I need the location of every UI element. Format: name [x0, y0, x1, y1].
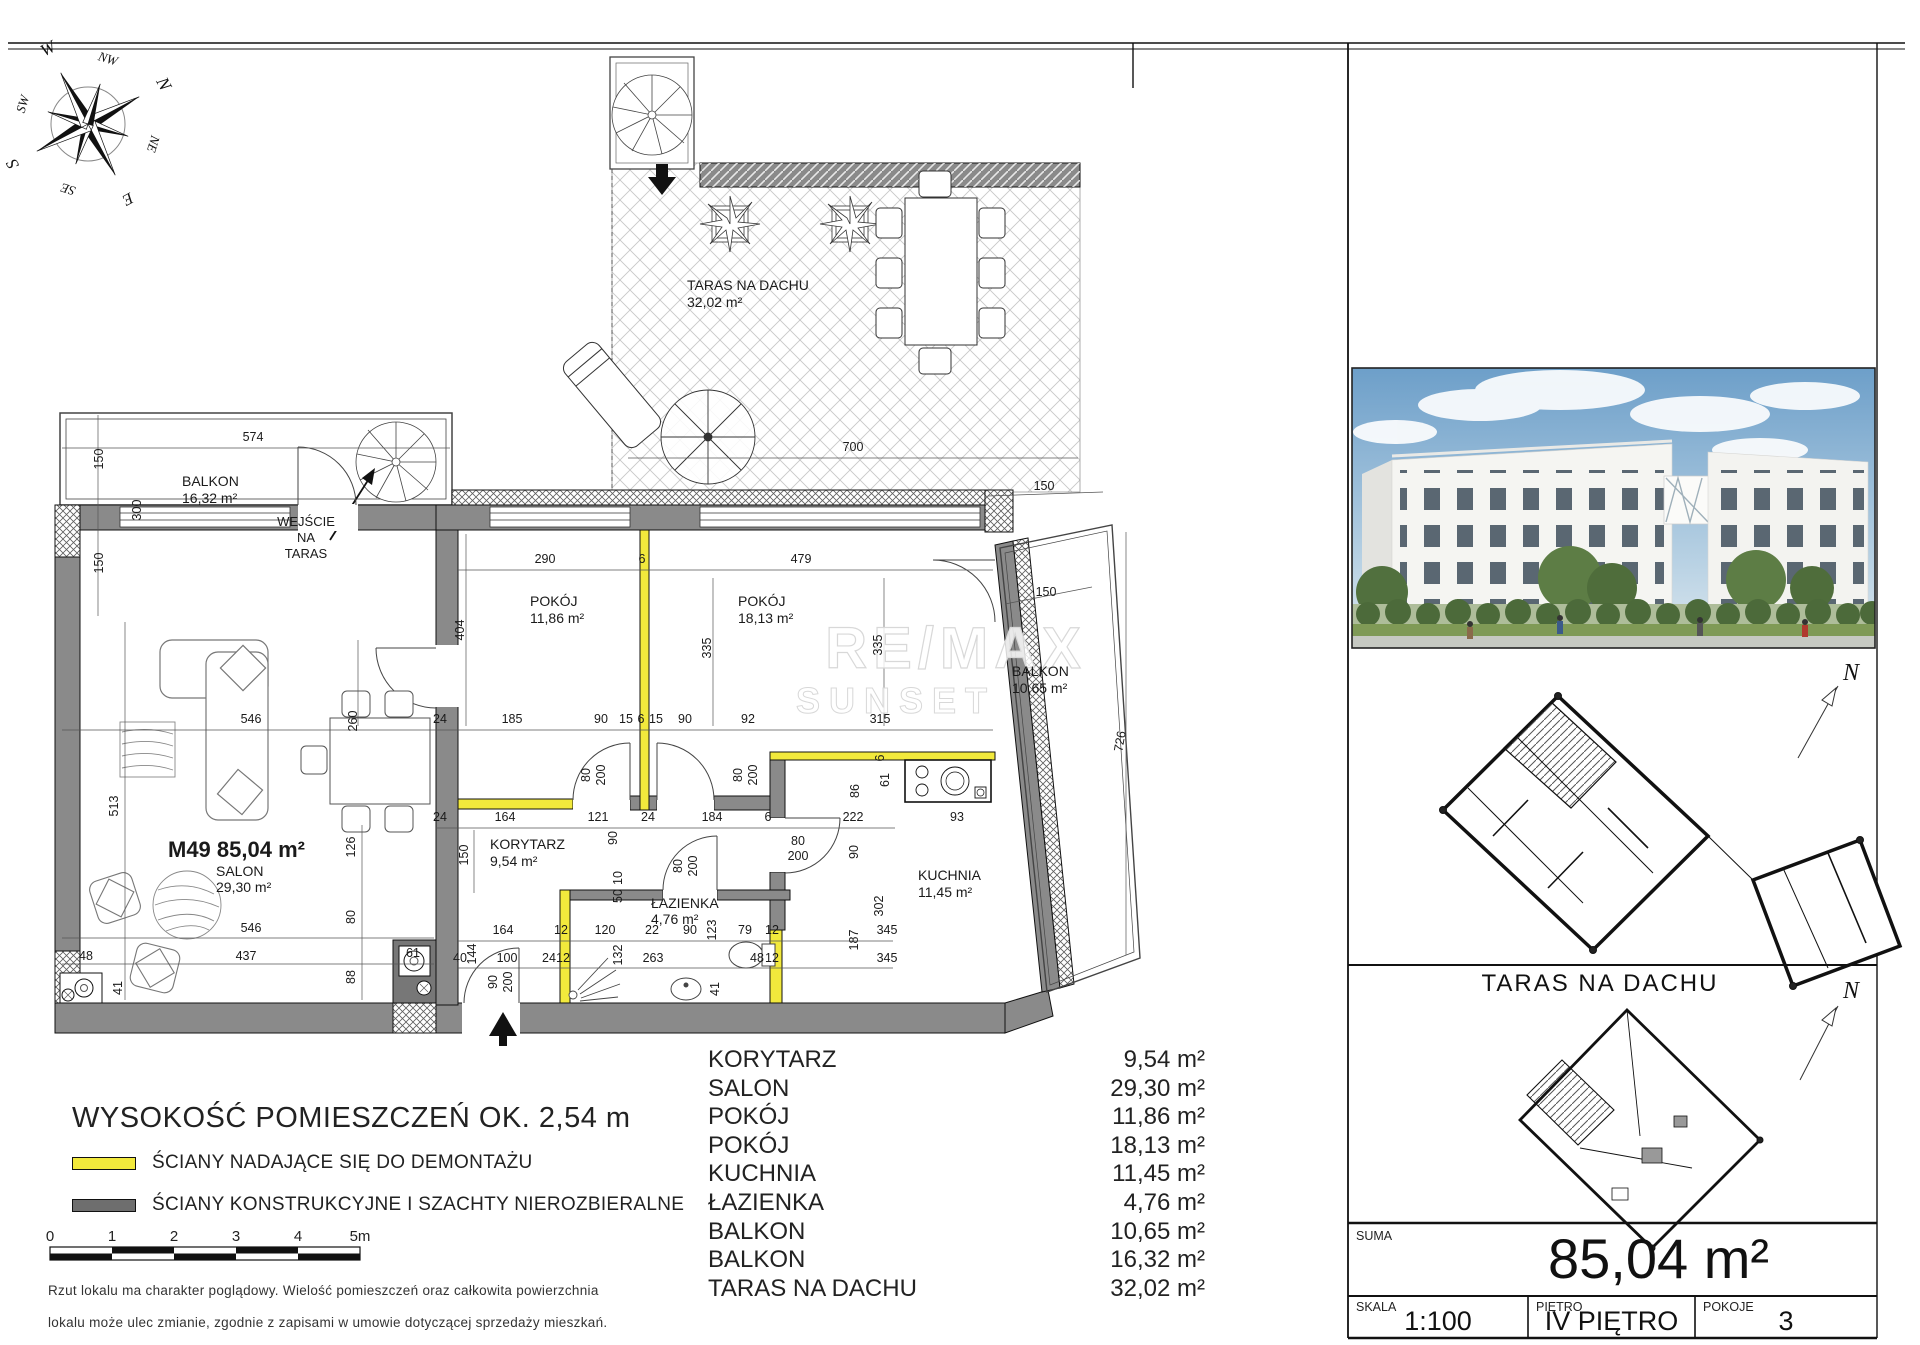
dim-label: 90 — [594, 712, 608, 726]
room-label: NA — [297, 530, 315, 545]
roof-terrace — [560, 57, 1080, 492]
room-name: TARAS NA DACHU — [708, 1275, 917, 1304]
dim-label: 150 — [92, 553, 106, 574]
dim-label: 48 — [750, 951, 764, 965]
dim-label: 12 — [765, 951, 779, 965]
dim-label: 90 — [486, 975, 500, 989]
dim-label: 302 — [872, 896, 886, 917]
dim-label: 61 — [406, 946, 420, 960]
suma-label: SUMA — [1356, 1229, 1392, 1243]
dim-label: 345 — [877, 923, 898, 937]
compass-label: W — [37, 36, 60, 60]
dim-label: 80 — [671, 859, 685, 873]
room-area: 11,86 m² — [1112, 1103, 1205, 1132]
pietro-value: IV PIĘTRO — [1528, 1306, 1695, 1337]
scalebar-label: 2 — [170, 1228, 178, 1245]
dim-label: 10 — [611, 871, 625, 885]
dim-label: 90 — [678, 712, 692, 726]
legend-swatch — [72, 1157, 136, 1170]
dim-label: 80 — [579, 768, 593, 782]
room-label: 16,32 m² — [182, 490, 238, 506]
washbasin-icon — [671, 978, 701, 1000]
legend-item: ŚCIANY NADAJĄCE SIĘ DO DEMONTAŻU — [72, 1152, 533, 1174]
dim-label: 6 — [638, 712, 645, 726]
room-table-row: ŁAZIENKA4,76 m² — [708, 1189, 1205, 1218]
room-area: 4,76 m² — [1124, 1189, 1205, 1218]
room-area: 18,13 m² — [1110, 1132, 1205, 1161]
spiral-stair-balcony-icon — [356, 422, 436, 502]
dim-label: 187 — [847, 930, 861, 951]
room-area: 29,30 m² — [1110, 1075, 1205, 1104]
dim-label: 90 — [847, 845, 861, 859]
dim-label: 335 — [700, 638, 714, 659]
dim-label: 24 — [433, 712, 447, 726]
dim-label: 12 — [556, 951, 570, 965]
room-table-row: POKÓJ11,86 m² — [708, 1103, 1205, 1132]
stove-icon — [905, 760, 991, 802]
compass-label: SW — [13, 92, 33, 114]
north-arrow-icon: N — [1798, 660, 1861, 758]
scalebar-label: 4 — [294, 1228, 302, 1245]
dim-label: 144 — [465, 944, 479, 965]
dim-label: 100 — [497, 951, 518, 965]
appliance-icon — [60, 973, 102, 1003]
room-label: 9,54 m² — [490, 853, 538, 869]
dim-label: 93 — [950, 810, 964, 824]
room-table-row: BALKON10,65 m² — [708, 1218, 1205, 1247]
legend-label: ŚCIANY NADAJĄCE SIĘ DO DEMONTAŻU — [152, 1152, 533, 1174]
ceiling-height-note: WYSOKOŚĆ POMIESZCZEŃ OK. 2,54 m — [72, 1102, 631, 1135]
dim-label: 80 — [344, 910, 358, 924]
room-area: 11,45 m² — [1112, 1160, 1205, 1189]
room-label: BALKON — [182, 473, 239, 489]
floor-plan — [55, 413, 1140, 1046]
dim-label: 86 — [848, 784, 862, 798]
dim-label: 200 — [686, 856, 700, 877]
dim-label: 184 — [702, 810, 723, 824]
dim-label: 15 — [649, 712, 663, 726]
scalebar-label: 3 — [232, 1228, 240, 1245]
room-name: POKÓJ — [708, 1103, 789, 1132]
room-table-row: BALKON16,32 m² — [708, 1246, 1205, 1275]
taras-mini-plan — [1520, 1010, 1763, 1251]
compass-label: NE — [144, 133, 164, 154]
room-area: 32,02 m² — [1110, 1275, 1205, 1304]
dim-label: 345 — [877, 951, 898, 965]
dim-label: 437 — [236, 949, 257, 963]
legend-label: ŚCIANY KONSTRUKCYJNE I SZACHTY NIEROZBIE… — [152, 1194, 684, 1216]
room-label: POKÓJ — [530, 593, 577, 609]
dim-label: 123 — [705, 920, 719, 941]
dim-label: 164 — [493, 923, 514, 937]
dim-label: 546 — [241, 921, 262, 935]
room-name: KORYTARZ — [708, 1046, 836, 1075]
plan-sheet: NNEESESSWWNW — [0, 0, 1920, 1345]
compass-label: NW — [96, 48, 121, 69]
dim-label: 41 — [708, 982, 722, 996]
compass-rose-icon: NNEESESSWWNW — [2, 36, 176, 209]
room-name: BALKON — [708, 1246, 805, 1275]
dim-label: 315 — [870, 712, 891, 726]
room-table-row: SALON29,30 m² — [708, 1075, 1205, 1104]
dim-label: 126 — [344, 837, 358, 858]
dim-label: 150 — [457, 845, 471, 866]
room-label: 11,45 m² — [918, 884, 973, 900]
room-label: ŁAZIENKA — [651, 895, 719, 911]
room-label: TARAS — [285, 546, 328, 561]
dining-table-icon — [301, 691, 430, 832]
room-label: TARAS NA DACHU — [687, 277, 809, 293]
dim-label: 150 — [92, 449, 106, 470]
dim-label: 150 — [1034, 479, 1055, 493]
dim-label: 335 — [871, 635, 885, 656]
dim-label: 24 — [542, 951, 556, 965]
spiral-stair-terrace-icon — [612, 75, 692, 155]
dim-label: 79 — [738, 923, 752, 937]
dim-label: 200 — [594, 765, 608, 786]
skala-value: 1:100 — [1348, 1306, 1528, 1337]
dim-label: 200 — [788, 849, 809, 863]
room-label: 18,13 m² — [738, 610, 794, 626]
room-label: POKÓJ — [738, 593, 785, 609]
compass-label: N — [152, 73, 176, 95]
legend-item: ŚCIANY KONSTRUKCYJNE I SZACHTY NIEROZBIE… — [72, 1194, 684, 1216]
room-label: 32,02 m² — [687, 294, 743, 310]
dim-label: 200 — [746, 765, 760, 786]
room-area: 10,65 m² — [1110, 1218, 1205, 1247]
room-label: KUCHNIA — [918, 867, 982, 883]
dim-label: 574 — [243, 430, 264, 444]
room-label: KORYTARZ — [490, 836, 565, 852]
dim-label: 132 — [611, 945, 625, 966]
dim-label: 24 — [641, 810, 655, 824]
north-letter: N — [1842, 660, 1861, 686]
windows — [120, 507, 980, 527]
room-label: WEJŚCIE — [277, 514, 335, 529]
dim-label: 260 — [346, 711, 360, 732]
compass-label: SE — [59, 180, 77, 199]
dim-label: 263 — [643, 951, 664, 965]
dim-label: 513 — [107, 796, 121, 817]
room-label: 29,30 m² — [216, 879, 272, 895]
room-table-row: POKÓJ18,13 m² — [708, 1132, 1205, 1161]
room-area: 9,54 m² — [1124, 1046, 1205, 1075]
dim-label: 61 — [878, 773, 892, 787]
suma-value: 85,04 m² — [1440, 1226, 1877, 1291]
room-table-row: KUCHNIA11,45 m² — [708, 1160, 1205, 1189]
room-name: SALON — [708, 1075, 789, 1104]
room-name: BALKON — [708, 1218, 805, 1247]
compass-label: E — [119, 188, 137, 208]
dim-label: 12 — [765, 923, 779, 937]
compass-label: S — [2, 155, 23, 172]
dim-label: 12 — [554, 923, 568, 937]
room-label: 10,65 m² — [1012, 680, 1068, 696]
taras-section-heading: TARAS NA DACHU — [1390, 970, 1810, 998]
dim-label: 6 — [639, 552, 646, 566]
dim-label: 185 — [502, 712, 523, 726]
dim-label: 700 — [843, 440, 864, 454]
room-label: 11,86 m² — [530, 610, 585, 626]
overview-plan — [1440, 693, 1901, 990]
dim-label: 121 — [588, 810, 609, 824]
room-area-table: KORYTARZ9,54 m²SALON29,30 m²POKÓJ11,86 m… — [708, 1046, 1205, 1303]
room-name: ŁAZIENKA — [708, 1189, 824, 1218]
dim-label: 41 — [111, 981, 125, 995]
dim-label: 24 — [433, 810, 447, 824]
legend-swatch — [72, 1199, 136, 1212]
dim-label: 300 — [130, 500, 144, 521]
terrace-umbrella-icon — [661, 390, 755, 484]
room-label: SALON — [216, 863, 263, 879]
building-photo — [1352, 368, 1884, 650]
dim-label: 92 — [741, 712, 755, 726]
room-label: M49 85,04 m² — [168, 837, 305, 862]
scalebar-label: 0 — [46, 1228, 54, 1245]
north-letter: N — [1842, 978, 1861, 1004]
dim-label: 479 — [791, 552, 812, 566]
dim-label: 404 — [453, 620, 467, 641]
scale-bar: 012345m — [46, 1228, 371, 1260]
dim-label: 164 — [495, 810, 516, 824]
scalebar-label: 1 — [108, 1228, 116, 1245]
dim-label: 290 — [535, 552, 556, 566]
dim-label: 88 — [344, 970, 358, 984]
dim-label: 90 — [606, 831, 620, 845]
dim-label: 15 — [619, 712, 633, 726]
side-panel-graphics: N N — [1348, 368, 1900, 1338]
watermark-text: SUNSET — [796, 680, 996, 721]
disclaimer-line: Rzut lokalu ma charakter poglądowy. Wiel… — [48, 1283, 599, 1298]
pokoje-value: 3 — [1695, 1306, 1877, 1337]
room-name: POKÓJ — [708, 1132, 789, 1161]
room-label: BALKON — [1012, 663, 1069, 679]
dim-label: 48 — [79, 949, 93, 963]
dim-label: 6 — [873, 754, 887, 761]
dim-label: 546 — [241, 712, 262, 726]
room-table-row: TARAS NA DACHU32,02 m² — [708, 1275, 1205, 1304]
room-name: KUCHNIA — [708, 1160, 816, 1189]
dim-label: 222 — [843, 810, 864, 824]
room-label: 4,76 m² — [651, 911, 699, 927]
dim-label: 150 — [1036, 585, 1057, 599]
dim-label: 200 — [501, 972, 515, 993]
disclaimer-line: lokalu może ulec zmianie, zgodnie z zapi… — [48, 1315, 607, 1330]
scalebar-label: 5m — [350, 1228, 371, 1245]
room-table-row: KORYTARZ9,54 m² — [708, 1046, 1205, 1075]
room-area: 16,32 m² — [1110, 1246, 1205, 1275]
dim-label: 80 — [791, 834, 805, 848]
dim-label: 50 — [611, 889, 625, 903]
dim-label: 80 — [731, 768, 745, 782]
dim-label: 120 — [595, 923, 616, 937]
dim-label: 6 — [765, 810, 772, 824]
